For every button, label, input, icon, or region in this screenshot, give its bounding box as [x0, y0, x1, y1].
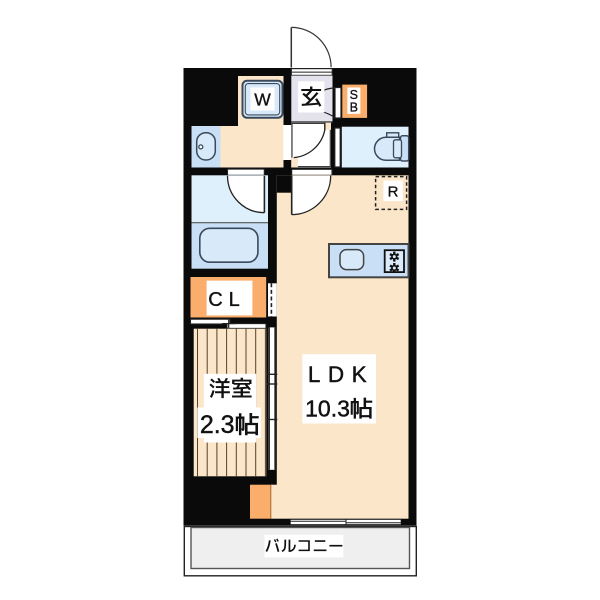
svg-text:B: B [350, 101, 358, 115]
svg-text:10.3: 10.3 [305, 396, 350, 422]
svg-text:R: R [388, 184, 399, 201]
svg-text:CL: CL [208, 289, 246, 311]
svg-text:W: W [254, 90, 271, 110]
svg-text:2.3: 2.3 [200, 411, 235, 439]
svg-text:LDK: LDK [308, 362, 374, 387]
